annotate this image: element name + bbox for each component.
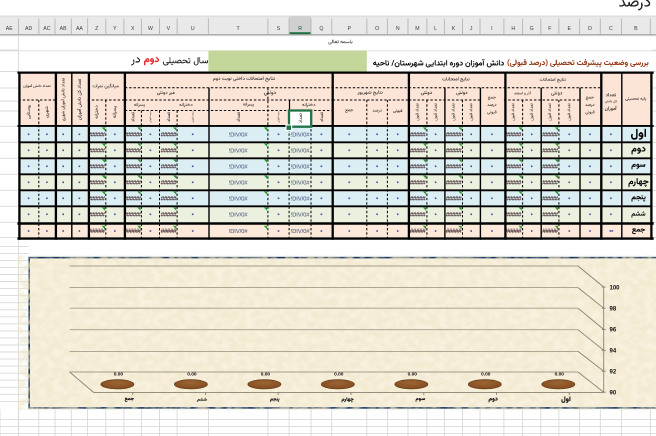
svg-text:#####: #####: [125, 163, 141, 170]
svg-text:AB: AB: [60, 26, 67, 32]
svg-text:!DIV/0#: !DIV/0#: [229, 212, 249, 218]
svg-text:#####: #####: [125, 195, 141, 202]
svg-text:X: X: [131, 26, 135, 32]
svg-text:#####: #####: [89, 179, 105, 186]
svg-text:98: 98: [610, 307, 617, 313]
svg-text:#####: #####: [446, 163, 462, 170]
svg-text:!DIV/0#: !DIV/0#: [229, 148, 249, 154]
svg-text:0.00: 0.00: [334, 372, 344, 378]
svg-text:#####: #####: [506, 228, 522, 235]
svg-text:#####: #####: [410, 228, 426, 235]
svg-text:P: P: [348, 26, 352, 32]
svg-text:#####: #####: [410, 131, 426, 138]
svg-text:E: E: [567, 26, 571, 32]
svg-text:#####: #####: [410, 179, 426, 186]
svg-text:92: 92: [610, 370, 617, 376]
svg-text:W: W: [148, 26, 153, 32]
svg-text:K: K: [452, 26, 456, 32]
svg-text:#####: #####: [506, 195, 522, 202]
svg-text:#####: #####: [161, 228, 177, 235]
svg-text:J: J: [470, 26, 473, 32]
svg-text:D: D: [588, 26, 592, 32]
svg-text:#####: #####: [446, 211, 462, 218]
svg-text:#####: #####: [161, 211, 177, 218]
svg-text:#####: #####: [542, 179, 558, 186]
svg-text:#####: #####: [89, 228, 105, 235]
svg-text:#####: #####: [446, 131, 462, 138]
svg-text:!DIV/0#: !DIV/0#: [291, 196, 311, 202]
svg-text:!DIV/0#: !DIV/0#: [291, 229, 311, 235]
svg-text:#####: #####: [410, 147, 426, 154]
svg-text:#####: #####: [125, 147, 141, 154]
svg-text:0.00: 0.00: [555, 372, 565, 378]
svg-text:M: M: [415, 26, 419, 32]
svg-text:#####: #####: [446, 195, 462, 202]
svg-text:U: U: [191, 26, 195, 32]
svg-text:0.00: 0.00: [187, 372, 197, 378]
svg-text:AE: AE: [6, 26, 13, 32]
svg-text:!DIV/0#: !DIV/0#: [229, 180, 249, 186]
svg-text:#####: #####: [161, 147, 177, 154]
svg-text:0.00: 0.00: [261, 372, 271, 378]
svg-text:Y: Y: [113, 26, 117, 32]
svg-text:!DIV/0#: !DIV/0#: [229, 229, 249, 235]
svg-text:90: 90: [610, 391, 617, 397]
svg-text:#####: #####: [506, 163, 522, 170]
svg-text:!DIV/0#: !DIV/0#: [291, 164, 311, 170]
svg-text:0.00: 0.00: [114, 372, 124, 378]
svg-text:94: 94: [610, 349, 617, 355]
svg-text:#####: #####: [446, 147, 462, 154]
svg-text:#####: #####: [542, 195, 558, 202]
svg-text:#####: #####: [161, 179, 177, 186]
svg-text:#####: #####: [89, 211, 105, 218]
svg-text:C: C: [609, 26, 613, 32]
svg-text:Q: Q: [319, 26, 323, 32]
svg-text:#####: #####: [506, 131, 522, 138]
svg-text:AC: AC: [43, 26, 50, 32]
svg-text:#####: #####: [410, 195, 426, 202]
svg-text:#####: #####: [410, 211, 426, 218]
svg-text:#####: #####: [89, 131, 105, 138]
svg-text:96: 96: [610, 328, 617, 334]
svg-text:#####: #####: [89, 195, 105, 202]
svg-text:100: 100: [610, 285, 621, 291]
svg-text:N: N: [396, 26, 400, 32]
svg-text:#####: #####: [125, 228, 141, 235]
svg-text:#####: #####: [410, 163, 426, 170]
svg-text:#####: #####: [506, 147, 522, 154]
svg-text:F: F: [548, 26, 551, 32]
svg-text:#####: #####: [89, 163, 105, 170]
svg-text:!DIV/0#: !DIV/0#: [291, 212, 311, 218]
svg-text:#####: #####: [161, 163, 177, 170]
svg-text:L: L: [434, 26, 437, 32]
svg-text:Z: Z: [95, 26, 98, 32]
svg-text:O: O: [375, 26, 379, 32]
svg-text:B: B: [634, 26, 638, 32]
svg-text:AA: AA: [76, 26, 83, 32]
svg-text:!DIV/0#: !DIV/0#: [291, 180, 311, 186]
svg-text:H: H: [511, 26, 515, 32]
svg-text:!DIV/0#: !DIV/0#: [229, 196, 249, 202]
svg-text:R: R: [298, 26, 302, 32]
svg-text:!DIV/0#: !DIV/0#: [291, 148, 311, 154]
svg-text:0.00: 0.00: [408, 372, 418, 378]
svg-text:#####: #####: [125, 211, 141, 218]
svg-text:S: S: [277, 26, 281, 32]
svg-text:!DIV/0#: !DIV/0#: [291, 132, 311, 138]
svg-text:G: G: [530, 26, 534, 32]
svg-text:#####: #####: [542, 163, 558, 170]
svg-text:#####: #####: [506, 179, 522, 186]
svg-text:#####: #####: [125, 131, 141, 138]
svg-text:#####: #####: [89, 147, 105, 154]
svg-text:#####: #####: [542, 228, 558, 235]
svg-text:#####: #####: [446, 228, 462, 235]
svg-text:#####: #####: [542, 211, 558, 218]
svg-text:0.00: 0.00: [481, 372, 491, 378]
svg-text:!DIV/0#: !DIV/0#: [229, 164, 249, 170]
svg-text:#####: #####: [125, 179, 141, 186]
svg-text:#####: #####: [542, 131, 558, 138]
svg-text:#####: #####: [542, 147, 558, 154]
svg-text:#####: #####: [446, 179, 462, 186]
svg-text:#####: #####: [161, 195, 177, 202]
svg-text:!DIV/0#: !DIV/0#: [229, 132, 249, 138]
svg-text:I: I: [491, 26, 492, 32]
svg-text:#####: #####: [161, 131, 177, 138]
svg-text:#####: #####: [506, 211, 522, 218]
svg-text:AD: AD: [25, 26, 32, 32]
svg-text:V: V: [167, 26, 171, 32]
